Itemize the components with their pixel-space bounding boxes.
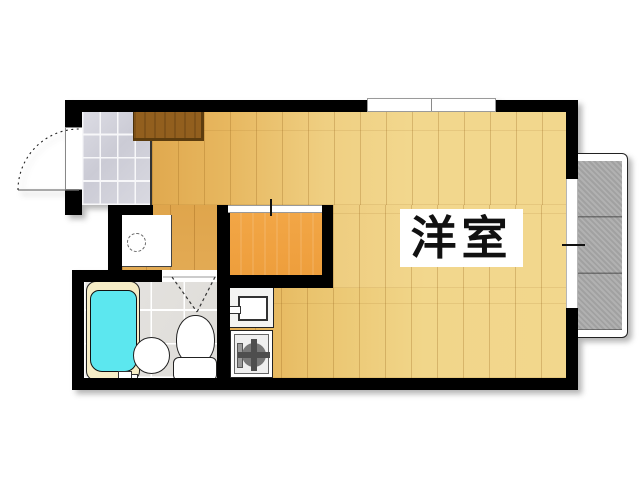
- floor-room-bottom: [229, 288, 566, 378]
- top-window: [367, 98, 496, 112]
- floorplan: 洋室: [0, 0, 640, 480]
- washing-machine-space: [122, 215, 172, 267]
- wall-washer-nook: [108, 205, 122, 282]
- closet: [228, 213, 322, 275]
- wall-left-above-door: [65, 100, 82, 127]
- floorplan-stage: 洋室: [0, 0, 640, 480]
- room-label-text: 洋室: [411, 215, 513, 261]
- shoe-cabinet: [133, 110, 204, 141]
- washbasin: [133, 337, 170, 374]
- balcony-window-tick: [562, 244, 585, 246]
- wall-left-below-door: [65, 190, 82, 215]
- entrance-door-opening: [65, 127, 82, 190]
- wall-genkan-bottom: [108, 205, 153, 215]
- wall-bath-left: [72, 270, 84, 390]
- wall-bottom: [72, 378, 578, 390]
- bathroom-door-opening: [162, 270, 217, 282]
- closet-door-track: [228, 205, 322, 213]
- wall-top-left: [65, 100, 367, 112]
- drain-circle-icon: [127, 233, 146, 252]
- burner-arm-v: [251, 339, 257, 371]
- kitchen-sink: [238, 296, 268, 321]
- closet-door-tick: [270, 199, 272, 216]
- wall-right-upper: [566, 100, 578, 179]
- floor-upper: [152, 112, 566, 205]
- bathtub: [90, 290, 137, 372]
- wall-closet-bottom: [217, 275, 333, 288]
- top-window-center-mullion: [431, 99, 432, 111]
- wall-mid-vertical: [217, 205, 230, 390]
- room-label-yoshitsu: 洋室: [400, 209, 523, 267]
